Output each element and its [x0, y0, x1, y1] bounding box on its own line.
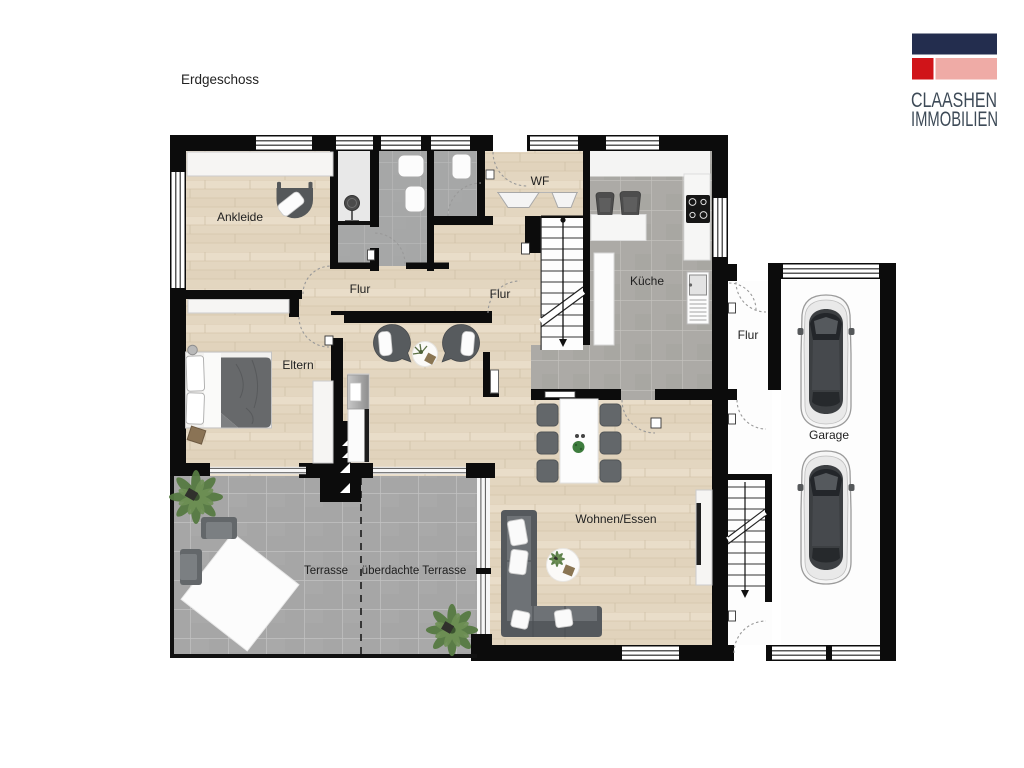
svg-text:Flur: Flur [738, 328, 759, 342]
svg-text:Flur: Flur [490, 287, 511, 301]
svg-text:Ankleide: Ankleide [217, 210, 263, 224]
svg-text:Eltern: Eltern [282, 358, 313, 372]
svg-text:Wohnen/Essen: Wohnen/Essen [575, 512, 656, 526]
svg-text:Garage: Garage [809, 428, 849, 442]
svg-text:Flur: Flur [350, 282, 371, 296]
svg-text:Terrasse: Terrasse [304, 565, 348, 577]
svg-text:Küche: Küche [630, 274, 664, 288]
svg-text:überdachte Terrasse: überdachte Terrasse [362, 565, 467, 577]
svg-text:Erdgeschoss: Erdgeschoss [181, 72, 259, 87]
svg-text:WF: WF [531, 174, 550, 188]
svg-text:IMMOBILIEN: IMMOBILIEN [911, 108, 998, 131]
